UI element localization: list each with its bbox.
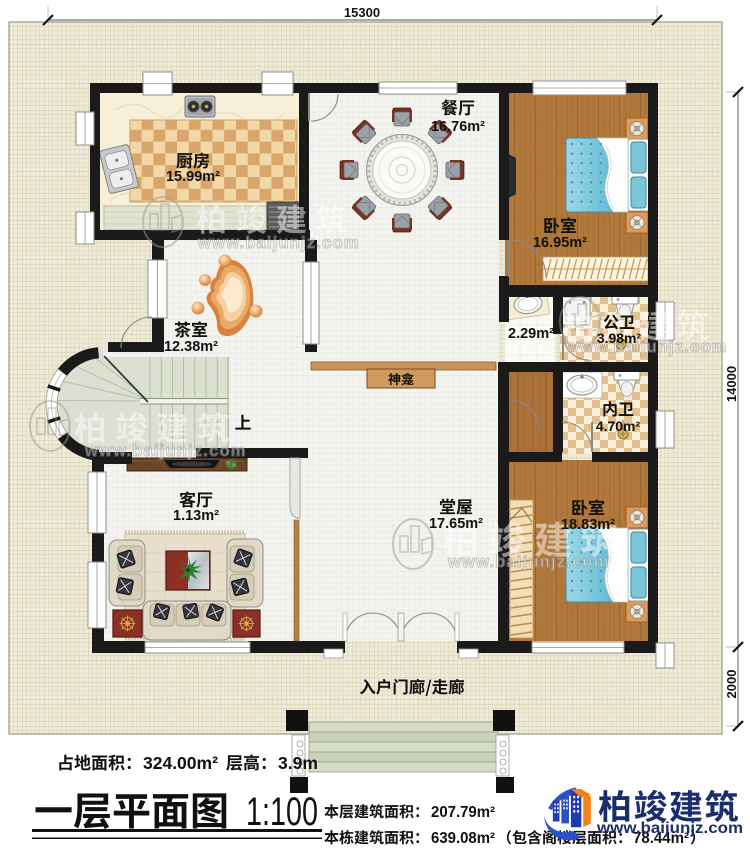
svg-text:4.70m²: 4.70m² — [596, 418, 641, 434]
svg-text:3.9m: 3.9m — [278, 753, 318, 773]
svg-text:www.baijunjz.com: www.baijunjz.com — [197, 234, 360, 252]
svg-text:1:100: 1:100 — [246, 790, 318, 834]
svg-text:639.08m²: 639.08m² — [431, 830, 495, 847]
svg-text:207.79m²: 207.79m² — [431, 804, 495, 821]
svg-text:www.baijunjz.com: www.baijunjz.com — [84, 442, 247, 460]
svg-text:www.baijunjz.com: www.baijunjz.com — [447, 553, 610, 571]
svg-text:15.99m²: 15.99m² — [166, 169, 220, 185]
svg-text:1.13m²: 1.13m² — [173, 508, 219, 524]
svg-text:18.83m²: 18.83m² — [561, 517, 615, 533]
svg-text:2.29m²: 2.29m² — [508, 326, 554, 342]
svg-text:3.98m²: 3.98m² — [597, 330, 642, 346]
svg-text:324.00m²: 324.00m² — [143, 753, 218, 773]
svg-text:15300: 15300 — [344, 5, 380, 20]
svg-text:16.95m²: 16.95m² — [533, 235, 587, 251]
svg-text:2000: 2000 — [724, 670, 739, 699]
svg-text:www.baijunjz.com: www.baijunjz.com — [565, 338, 728, 356]
svg-text:17.65m²: 17.65m² — [429, 516, 483, 532]
svg-text:16.76m²: 16.76m² — [431, 119, 485, 135]
svg-text:14000: 14000 — [724, 366, 739, 402]
svg-text:www.baijunjz.com: www.baijunjz.com — [596, 820, 743, 837]
svg-text:12.38m²: 12.38m² — [164, 339, 218, 355]
